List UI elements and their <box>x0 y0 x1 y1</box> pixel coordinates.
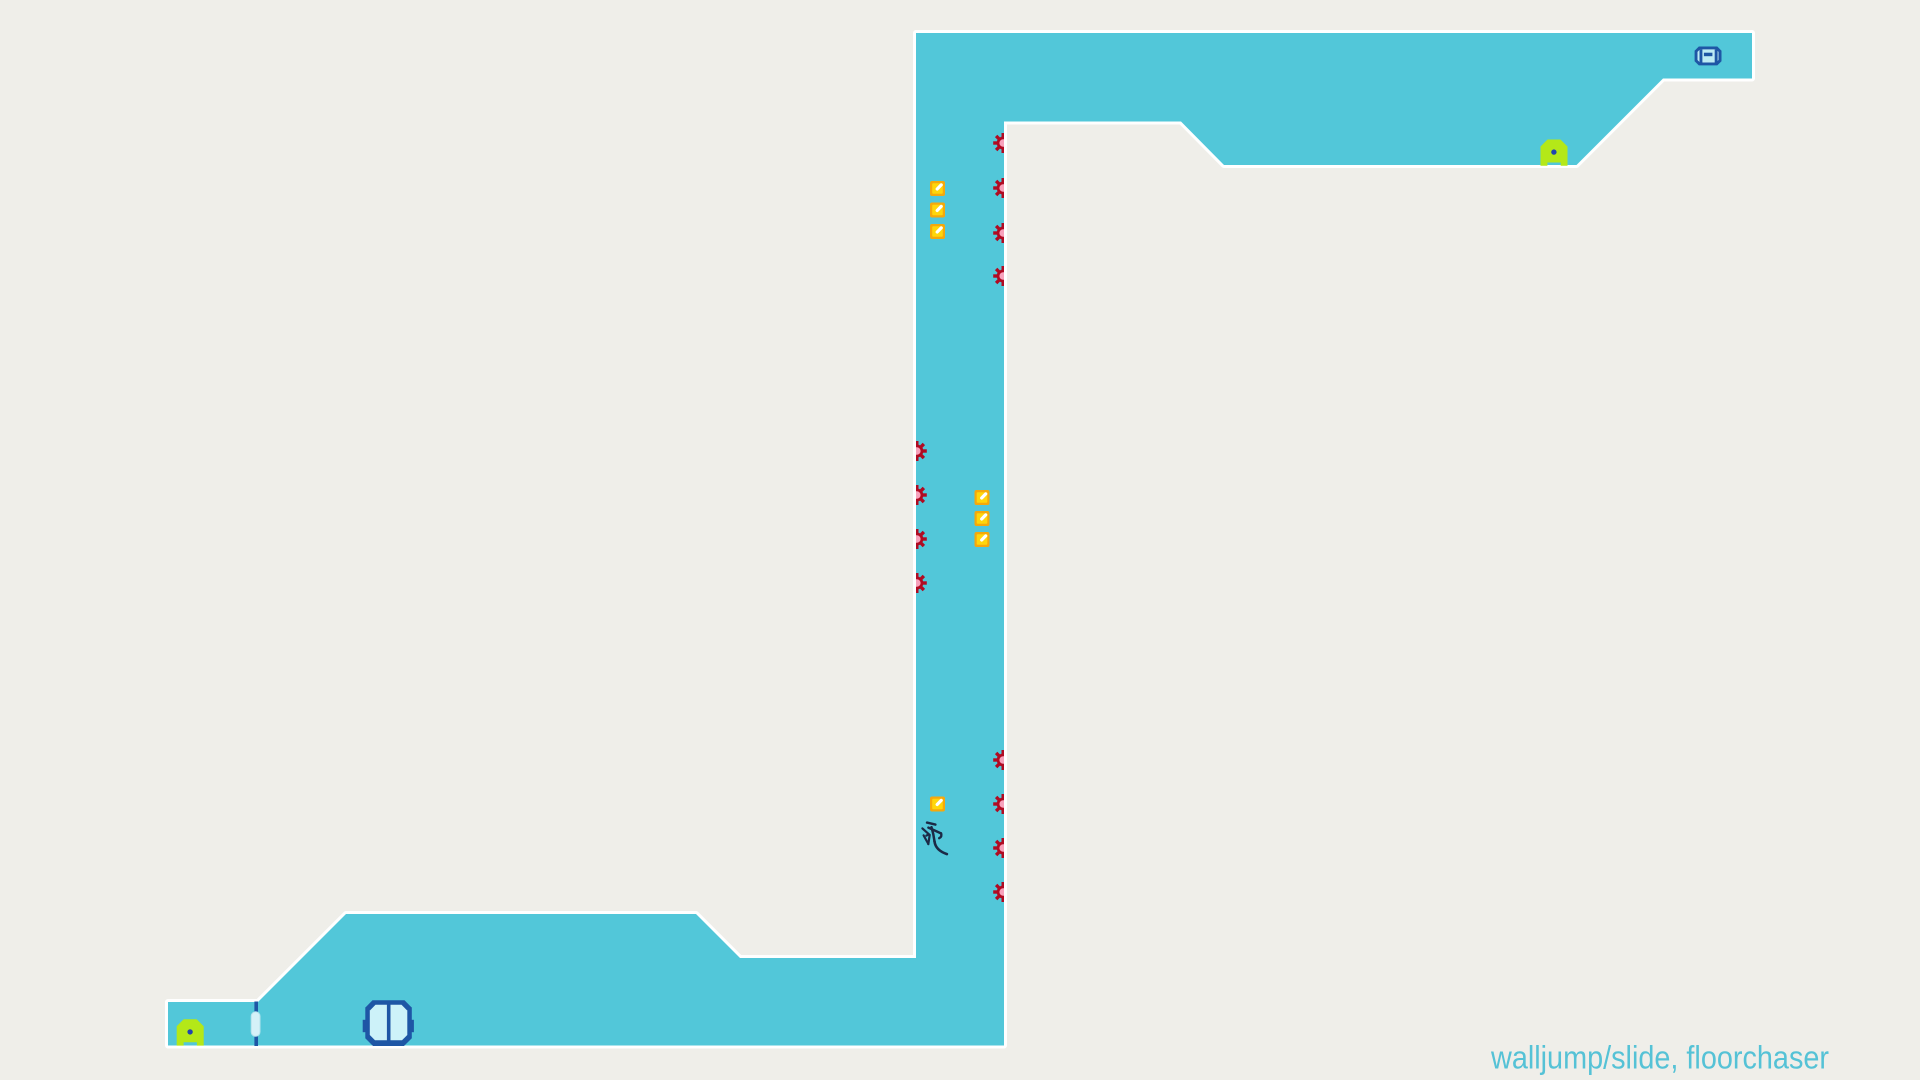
svg-text:walljump/slide, floorchaser: walljump/slide, floorchaser <box>1490 1040 1829 1076</box>
